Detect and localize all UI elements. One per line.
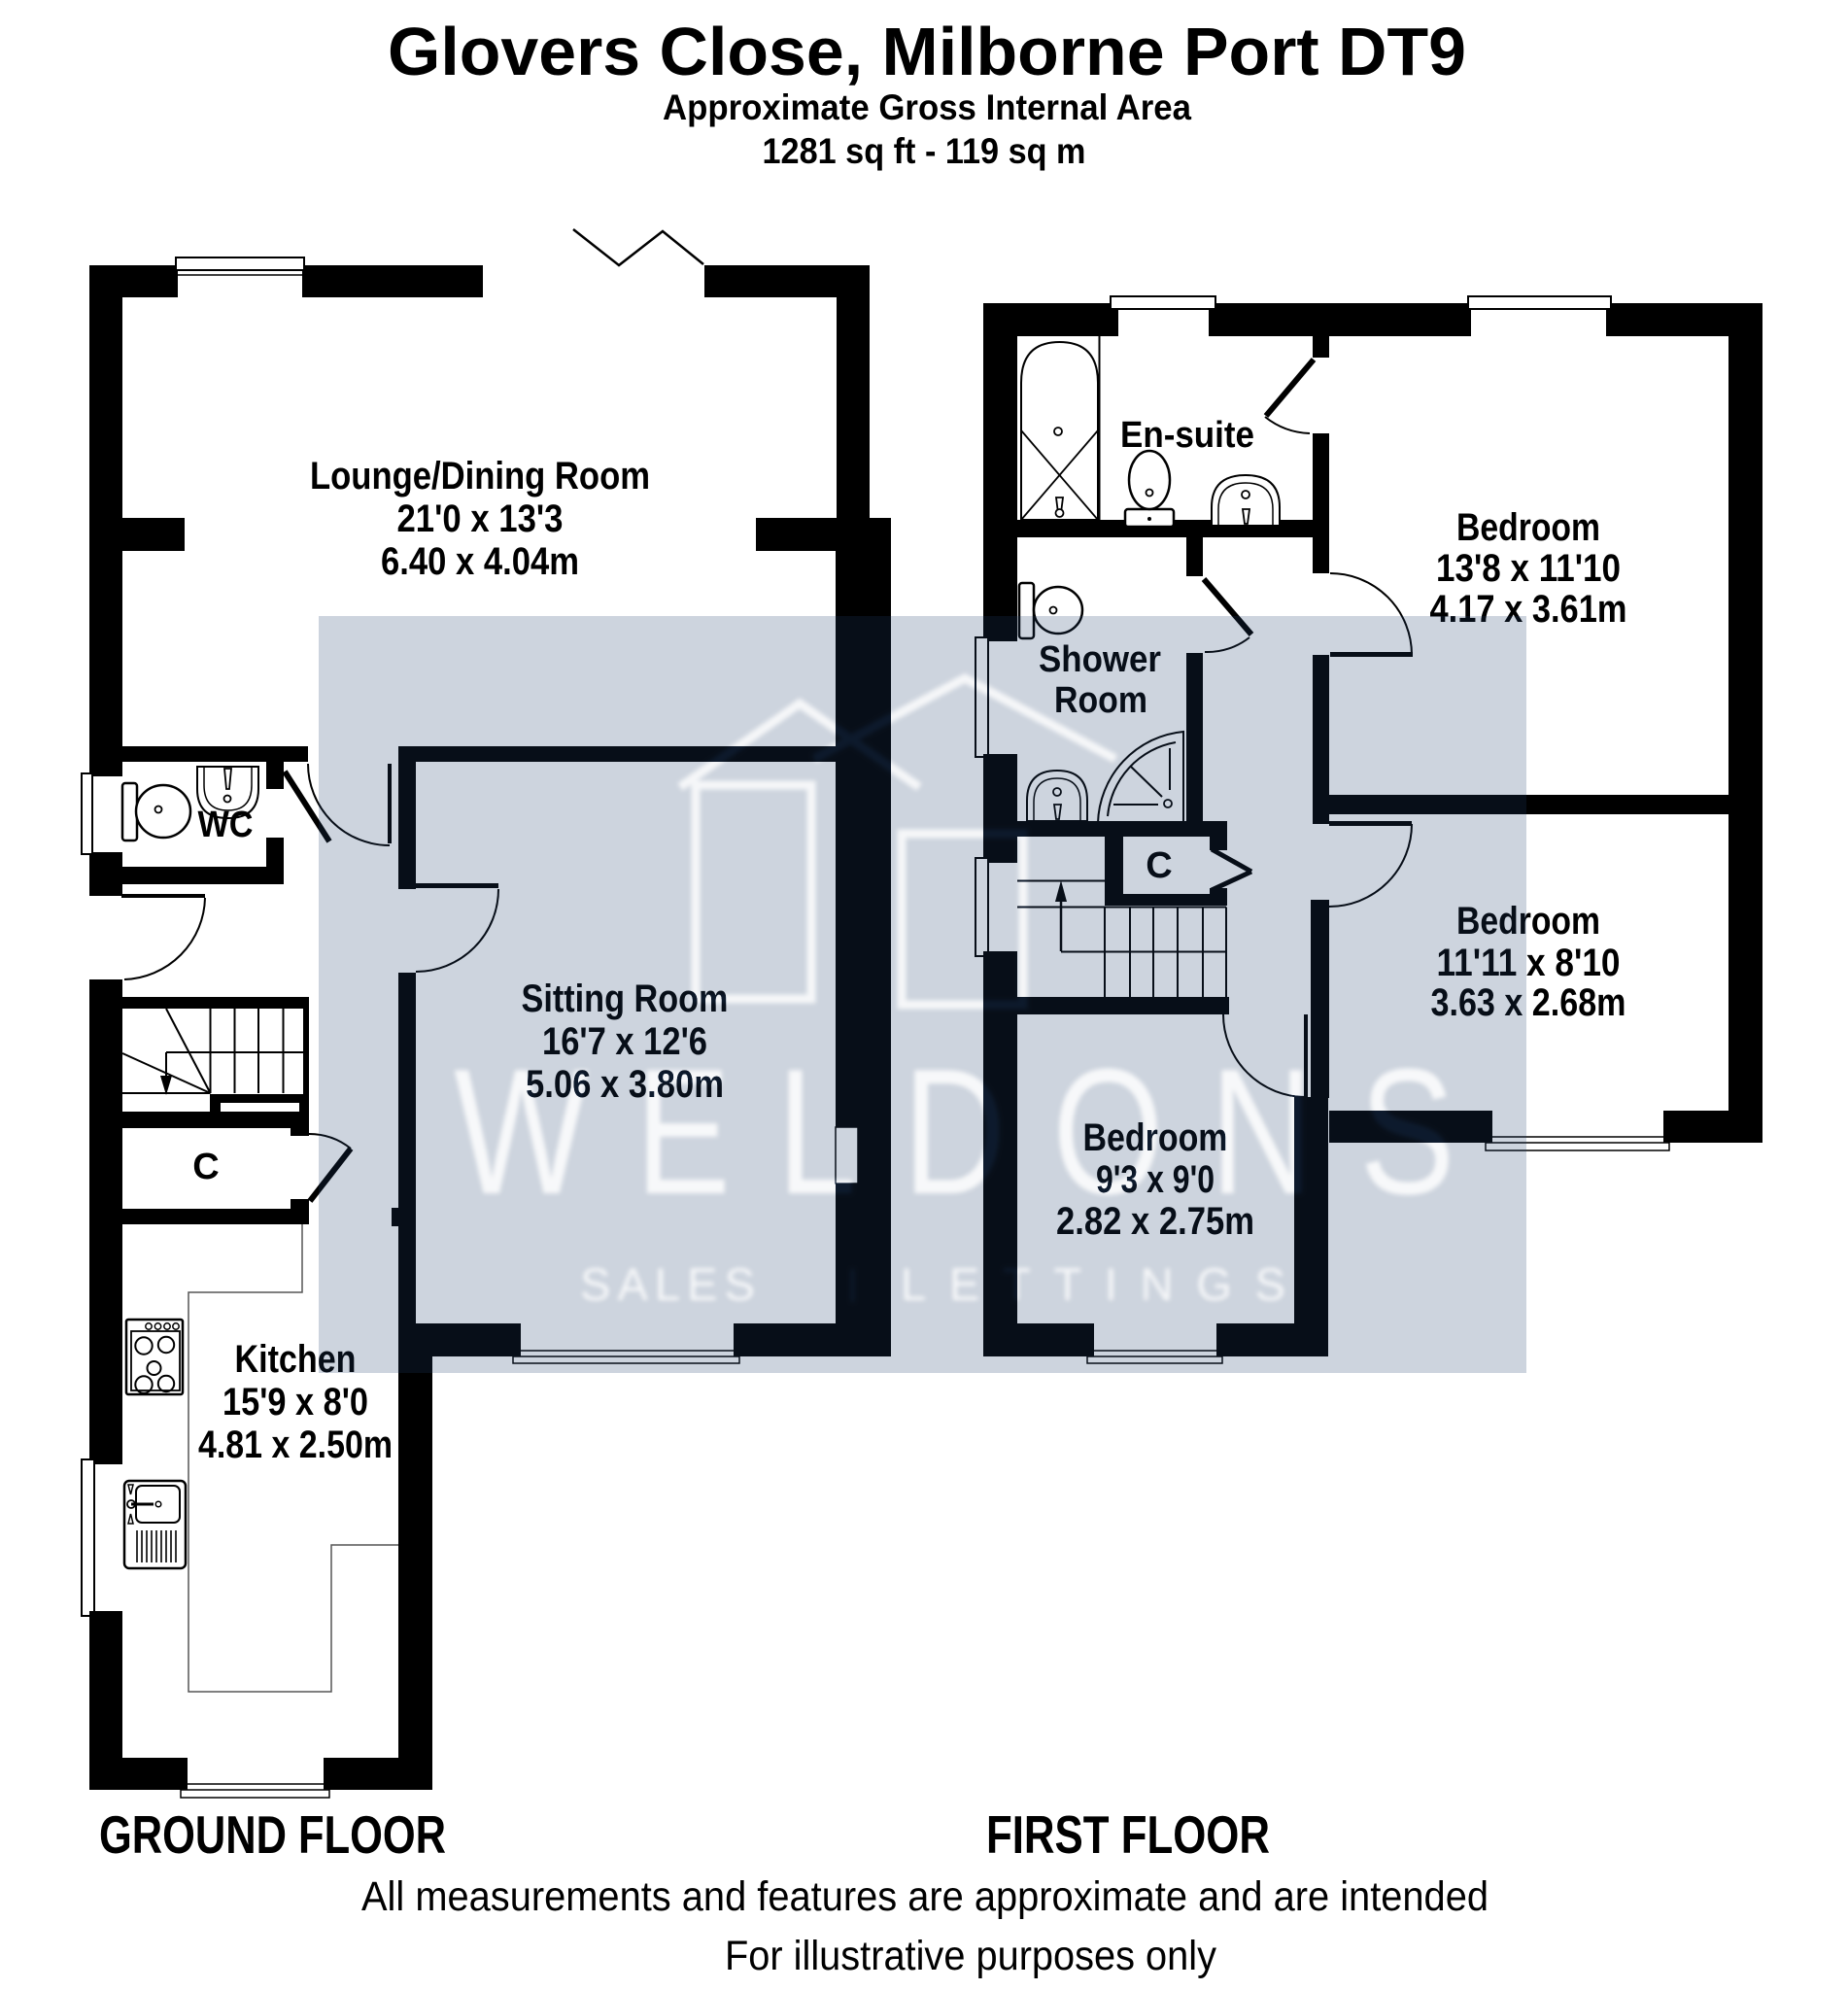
svg-text:En-suite: En-suite <box>1120 415 1254 456</box>
svg-text:GROUND FLOOR: GROUND FLOOR <box>99 1804 446 1865</box>
svg-text:4.81 x 2.50m: 4.81 x 2.50m <box>198 1424 393 1466</box>
svg-text:WC: WC <box>198 805 254 845</box>
svg-text:1281 sq ft - 119 sq m: 1281 sq ft - 119 sq m <box>763 131 1086 171</box>
svg-text:All measurements and features: All measurements and features are approx… <box>361 1873 1489 1920</box>
svg-text:Approximate Gross Internal Are: Approximate Gross Internal Area <box>663 87 1191 127</box>
svg-text:FIRST FLOOR: FIRST FLOOR <box>986 1804 1270 1865</box>
svg-text:Lounge/Dining Room: Lounge/Dining Room <box>310 455 650 497</box>
svg-text:Glovers Close, Milborne Port D: Glovers Close, Milborne Port DT9 <box>388 14 1466 89</box>
svg-text:For illustrative purposes only: For illustrative purposes only <box>725 1933 1216 1979</box>
svg-text:Bedroom: Bedroom <box>1456 506 1600 549</box>
svg-text:C: C <box>192 1147 219 1187</box>
svg-text:WELDONS: WELDONS <box>454 1032 1501 1231</box>
svg-text:21'0 x 13'3: 21'0 x 13'3 <box>397 497 564 540</box>
svg-text:6.40 x 4.04m: 6.40 x 4.04m <box>381 540 579 583</box>
svg-text:13'8 x 11'10: 13'8 x 11'10 <box>1436 547 1621 590</box>
svg-text:15'9 x 8'0: 15'9 x 8'0 <box>222 1381 368 1424</box>
svg-text:SALES: SALES <box>580 1258 755 1310</box>
